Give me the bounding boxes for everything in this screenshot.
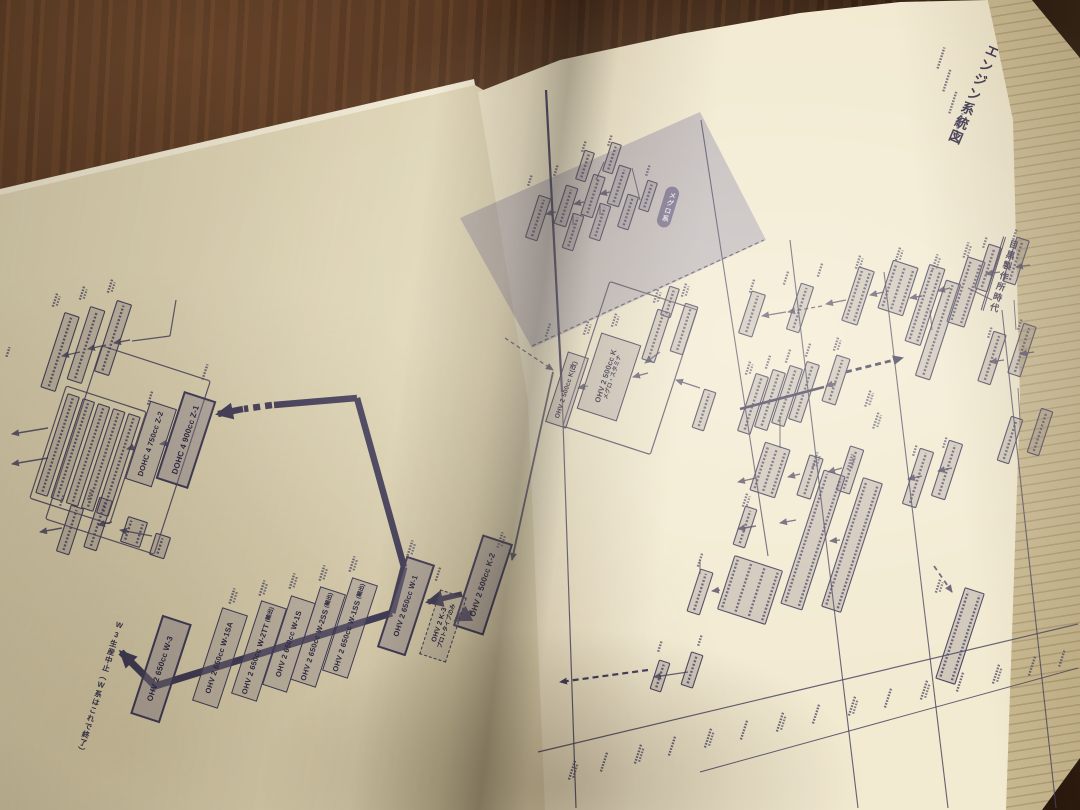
engine-box-w1ss-note: (輸出) — [356, 583, 367, 600]
engine-box-k-kai-label: OHV 2 500cc K(改) — [554, 360, 579, 419]
engine-box-k: OHV 2 500cc Kメグロ・スタミナ — [577, 332, 642, 421]
photo-open-book-engine-chart: DOHC 4 900cc Z-1 DOHC 4 750cc Z-2 OHV 2 … — [0, 0, 1080, 810]
w3-discontinued-note: W3生産中止（W系はこれで終了） — [74, 619, 126, 757]
engine-box-w3-label: OHV 2 650cc W-3 — [146, 635, 175, 703]
meguro-badge: メグロ系 — [655, 185, 681, 229]
engine-box-w2ss-note: (輸出) — [324, 592, 335, 609]
engine-box-w3: OHV 2 650cc W-3 — [130, 615, 192, 723]
engine-box-w1-label: OHV 2 650cc W-1 — [392, 574, 420, 638]
engine-box-w1sa-label: OHV 2 650cc W-1SA — [204, 621, 235, 695]
meguro-era-heading: 目黒製作所時代 — [981, 236, 1022, 315]
engine-box-w2tt-note: (輸出) — [265, 607, 276, 624]
flowchart-labels-layer: DOHC 4 900cc Z-1 DOHC 4 750cc Z-2 OHV 2 … — [0, 0, 1080, 810]
engine-box-z1-label: DOHC 4 900cc Z-1 — [171, 404, 202, 475]
page-title: エンジン系統図 — [942, 40, 1003, 148]
engine-box-k2: OHV 2 500cc K-2 — [453, 534, 513, 635]
engine-box-k2-label: OHV 2 500cc K-2 — [469, 552, 498, 618]
